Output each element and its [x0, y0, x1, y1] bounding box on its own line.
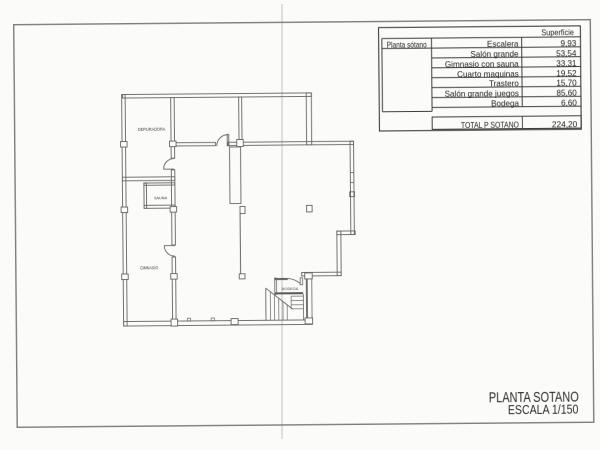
svg-text:6,60: 6,60 — [561, 99, 577, 108]
svg-text:BODEGA: BODEGA — [282, 287, 299, 291]
svg-text:DEPURADORA: DEPURADORA — [138, 127, 166, 132]
svg-text:SAUNA: SAUNA — [154, 196, 168, 200]
svg-text:TOTAL P SOTANO: TOTAL P SOTANO — [461, 120, 520, 131]
svg-text:ESCALA 1/150: ESCALA 1/150 — [508, 402, 579, 418]
svg-text:Salón grande: Salón grande — [470, 50, 519, 59]
svg-text:224,20: 224,20 — [552, 119, 578, 129]
svg-text:53,54: 53,54 — [556, 49, 577, 58]
svg-text:15,70: 15,70 — [556, 79, 577, 88]
svg-text:Trastero: Trastero — [489, 79, 519, 88]
svg-text:Cuarto maquinas: Cuarto maquinas — [457, 69, 519, 79]
svg-text:Gimnasio con sauna: Gimnasio con sauna — [445, 59, 519, 69]
svg-text:Superficie: Superficie — [541, 28, 574, 37]
svg-text:Planta sótano: Planta sótano — [387, 40, 427, 49]
svg-text:33,31: 33,31 — [556, 59, 577, 68]
svg-text:Bodega: Bodega — [491, 99, 519, 108]
svg-text:Escalera: Escalera — [487, 40, 519, 49]
svg-text:19,52: 19,52 — [556, 69, 577, 78]
svg-text:9,93: 9,93 — [561, 39, 577, 48]
svg-text:GIMNASIO: GIMNASIO — [140, 265, 159, 270]
svg-text:Salón grande juegos: Salón grande juegos — [445, 89, 519, 99]
svg-text:85,60: 85,60 — [557, 89, 578, 98]
